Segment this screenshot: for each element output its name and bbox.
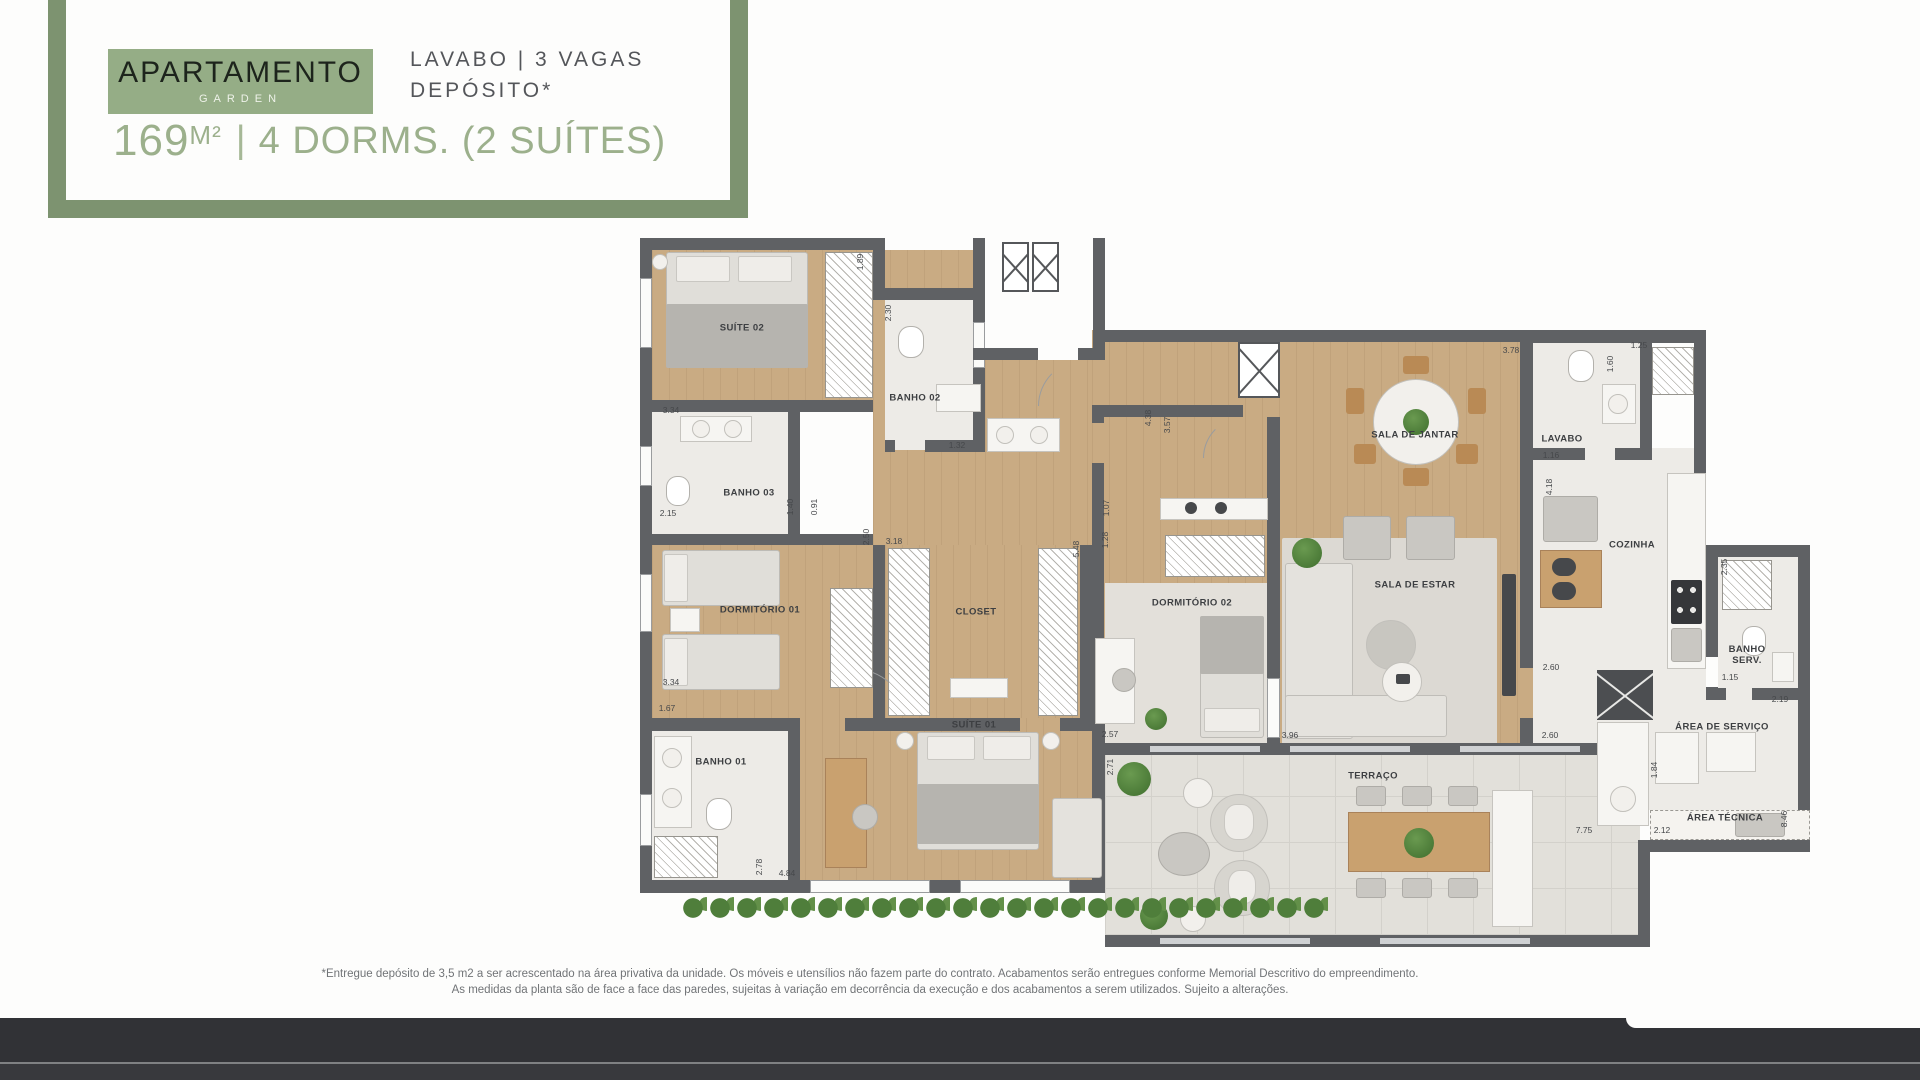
room-label: DORMITÓRIO 01 — [720, 605, 800, 616]
plant — [1145, 708, 1167, 730]
wall — [1092, 405, 1104, 423]
desk-chair — [852, 804, 878, 830]
terrace-chair — [1356, 786, 1386, 806]
dimension-label: 2.50 — [861, 529, 871, 546]
laundry-tank — [1706, 732, 1756, 772]
frame-bottom-bar — [48, 200, 748, 218]
footnote: *Entregue depósito de 3,5 m2 a ser acres… — [290, 966, 1450, 998]
wall — [640, 238, 885, 250]
plant — [1117, 762, 1151, 796]
cooktop — [1671, 580, 1702, 624]
wall — [973, 348, 1038, 360]
coffee-table — [1158, 832, 1210, 876]
shower — [654, 836, 718, 878]
dimension-label: 4.38 — [1143, 410, 1153, 427]
washer — [1655, 732, 1699, 784]
wall — [1078, 348, 1105, 360]
dimension-label: 2.78 — [754, 859, 764, 876]
dining-chair — [1346, 388, 1364, 414]
window — [640, 574, 652, 632]
sofa — [1285, 695, 1447, 737]
dimension-label: 1.28 — [1100, 532, 1110, 549]
room-label: ÁREA TÉCNICA — [1687, 813, 1763, 824]
area-value: 169 — [113, 118, 189, 164]
dining-chair — [1468, 388, 1486, 414]
dimension-label: 2.71 — [1105, 759, 1115, 776]
toilet — [666, 476, 690, 506]
wall — [1706, 557, 1718, 657]
wall — [788, 731, 800, 880]
dimension-label: 2.35 — [1719, 559, 1729, 576]
sink — [1030, 426, 1048, 444]
nightstand — [896, 732, 914, 750]
room-label: BANHO SERV. — [1729, 644, 1766, 666]
plant — [1292, 538, 1322, 568]
sink — [724, 420, 742, 438]
window — [973, 322, 985, 368]
sink — [1608, 394, 1628, 414]
floor-plan: SUÍTE 02BANHO 02BANHO 03DORMITÓRIO 01CLO… — [640, 238, 1830, 952]
wall — [652, 400, 873, 412]
service-shaft — [1597, 670, 1653, 720]
room-label: CLOSET — [956, 607, 997, 618]
shower — [1722, 560, 1772, 610]
elevator-door — [1002, 242, 1029, 292]
wall — [1640, 335, 1652, 460]
dimension-label: 2.30 — [883, 305, 893, 322]
dimension-label: 3.34 — [663, 405, 680, 415]
dorms-text: 4 DORMS. (2 SUÍTES) — [259, 118, 667, 164]
vanity — [936, 384, 981, 412]
frame-left-bar — [48, 0, 66, 218]
dimension-label: 3.34 — [663, 677, 680, 687]
sink — [662, 748, 682, 768]
room-label: SUÍTE 01 — [952, 720, 996, 731]
wall — [873, 288, 985, 300]
sliding-door — [1290, 746, 1410, 752]
floorplan-page: APARTAMENTO GARDEN LAVABO | 3 VAGAS DEPÓ… — [0, 0, 1920, 1080]
window — [1267, 678, 1280, 738]
wardrobe-closet — [1038, 548, 1078, 716]
elevator-door — [1032, 242, 1059, 292]
room-label: SALA DE ESTAR — [1375, 580, 1456, 591]
room-label: BANHO 03 — [723, 488, 774, 499]
sliding-door — [1150, 746, 1260, 752]
dimension-label: 2.60 — [1542, 730, 1559, 740]
dimension-label: 3.96 — [1282, 730, 1299, 740]
dimension-label: 4.18 — [1544, 479, 1554, 496]
dimension-label: 1.89 — [855, 254, 865, 271]
terrace-railing — [1380, 938, 1530, 944]
washer-drum — [1610, 786, 1636, 812]
pillow — [676, 256, 730, 282]
badge-title: APARTAMENTO — [118, 58, 363, 88]
pillow — [664, 554, 688, 602]
dining-chair — [1403, 468, 1429, 486]
area-unit: M² — [189, 120, 221, 150]
dimension-label: 0.91 — [809, 499, 819, 516]
dimension-label: 2.60 — [1543, 662, 1560, 672]
lounge-cushion — [1224, 804, 1254, 840]
armchair — [1406, 516, 1455, 560]
dimension-label: 7.75 — [1576, 825, 1593, 835]
dimension-label: 1.67 — [659, 703, 676, 713]
wall — [1718, 688, 1726, 700]
sink — [662, 788, 682, 808]
floor-banho-02 — [885, 300, 985, 450]
sink — [692, 420, 710, 438]
desk-chair — [1112, 668, 1136, 692]
blanket — [666, 304, 808, 368]
dimension-label: 1.07 — [1101, 500, 1111, 517]
wall — [1650, 840, 1810, 852]
garden-hedge — [680, 894, 1328, 922]
dimension-label: 2.15 — [660, 508, 677, 518]
cooktop-burner — [1185, 502, 1197, 514]
dimension-label: 1.60 — [1605, 356, 1615, 373]
entry-closet — [1238, 342, 1280, 398]
terrace-chair — [1402, 786, 1432, 806]
room-label: BANHO 02 — [889, 393, 940, 404]
dimension-label: 3.78 — [1503, 345, 1520, 355]
pillow — [1204, 708, 1260, 732]
toilet — [898, 326, 924, 358]
headline-separator: | — [236, 118, 247, 162]
dimension-label: 2.57 — [1102, 729, 1119, 739]
nightstand — [1042, 732, 1060, 750]
dimension-label: 1.16 — [1543, 450, 1560, 460]
dimension-label: 2.12 — [1654, 825, 1671, 835]
dimension-label: 1.15 — [1722, 672, 1739, 682]
dining-chair — [1354, 444, 1376, 464]
features-text: LAVABO | 3 VAGAS DEPÓSITO* — [410, 44, 644, 106]
dimension-label: 5.48 — [1071, 541, 1081, 558]
tv-console — [1502, 574, 1516, 696]
wardrobe-dorm-02 — [1165, 535, 1265, 577]
pillow — [983, 736, 1031, 760]
room-label: COZINHA — [1609, 540, 1655, 551]
wall — [1798, 545, 1810, 810]
wardrobe-suite-02 — [825, 252, 873, 398]
terrace-chair — [1448, 878, 1478, 898]
dimension-label: 1.84 — [1649, 762, 1659, 779]
wall — [1520, 330, 1706, 343]
window — [640, 794, 652, 846]
table-plant — [1404, 828, 1434, 858]
dimension-label: 1.25 — [1631, 340, 1648, 350]
room-label: DORMITÓRIO 02 — [1152, 598, 1232, 609]
blanket — [917, 784, 1039, 844]
closet-bench — [950, 678, 1008, 698]
wall — [1706, 687, 1718, 700]
area-headline: 169 M² | 4 DORMS. (2 SUÍTES) — [113, 118, 666, 164]
tray — [1396, 674, 1410, 684]
nightstand — [670, 608, 700, 632]
hall-counter — [1160, 498, 1268, 520]
dining-chair — [1456, 444, 1478, 464]
toilet — [1568, 350, 1594, 382]
dimension-label: 8.46 — [1779, 811, 1789, 828]
window — [960, 880, 1070, 893]
wall — [1080, 545, 1092, 718]
wall — [1615, 448, 1640, 460]
apartment-badge: APARTAMENTO GARDEN — [108, 49, 373, 114]
wall — [652, 534, 873, 545]
dimension-label: 1.32 — [949, 440, 966, 450]
wall — [1520, 330, 1533, 668]
terrace-island — [1492, 790, 1533, 927]
pillow — [927, 736, 975, 760]
footnote-line-2: As medidas da planta são de face a face … — [290, 982, 1450, 998]
window — [640, 278, 652, 348]
wall — [1706, 545, 1810, 557]
side-table — [652, 254, 668, 270]
window — [640, 446, 652, 486]
wall — [788, 412, 800, 534]
dimension-label: 1.40 — [785, 499, 795, 516]
dimension-label: 4.84 — [779, 868, 796, 878]
wall — [640, 718, 800, 731]
wardrobe-dorm-01 — [830, 588, 873, 688]
armchair — [1343, 516, 1391, 560]
window-chaise — [1052, 798, 1102, 878]
window — [810, 880, 930, 893]
dimension-label: 3.18 — [886, 536, 903, 546]
frame-right-bar — [730, 0, 748, 218]
blanket — [1200, 616, 1264, 674]
dimension-label: 3.57 — [1162, 417, 1172, 434]
dining-chair — [1403, 356, 1429, 374]
sink — [996, 426, 1014, 444]
wall — [1092, 405, 1243, 417]
footnote-line-1: *Entregue depósito de 3,5 m2 a ser acres… — [290, 966, 1450, 982]
duct-shaft — [1652, 347, 1694, 395]
fridge — [1543, 496, 1598, 542]
badge-subtitle: GARDEN — [199, 93, 282, 105]
wall — [1060, 718, 1092, 731]
toilet — [706, 798, 732, 830]
terrace-chair — [1448, 786, 1478, 806]
room-label: TERRAÇO — [1348, 771, 1398, 782]
kitchen-chair — [1552, 582, 1576, 600]
wall — [1093, 238, 1105, 360]
terrace-chair — [1356, 878, 1386, 898]
side-table — [1183, 778, 1213, 808]
kitchen-chair — [1552, 558, 1576, 576]
wall — [1105, 330, 1520, 342]
room-label: LAVABO — [1541, 434, 1582, 445]
page-corner-notch — [1626, 1018, 1920, 1028]
wall — [885, 440, 895, 452]
dimension-label: 2.19 — [1772, 694, 1789, 704]
terrace-railing — [1160, 938, 1310, 944]
sink — [1772, 652, 1794, 682]
room-label: SUÍTE 02 — [720, 323, 764, 334]
terrace-chair — [1402, 878, 1432, 898]
sliding-door — [1460, 746, 1580, 752]
room-label: BANHO 01 — [695, 757, 746, 768]
pillow — [738, 256, 792, 282]
room-label: SALA DE JANTAR — [1371, 430, 1458, 441]
oven — [1671, 628, 1702, 662]
wall — [1638, 840, 1650, 947]
room-label: ÁREA DE SERVIÇO — [1675, 722, 1769, 733]
cooktop-burner — [1215, 502, 1227, 514]
wardrobe-closet — [888, 548, 930, 716]
